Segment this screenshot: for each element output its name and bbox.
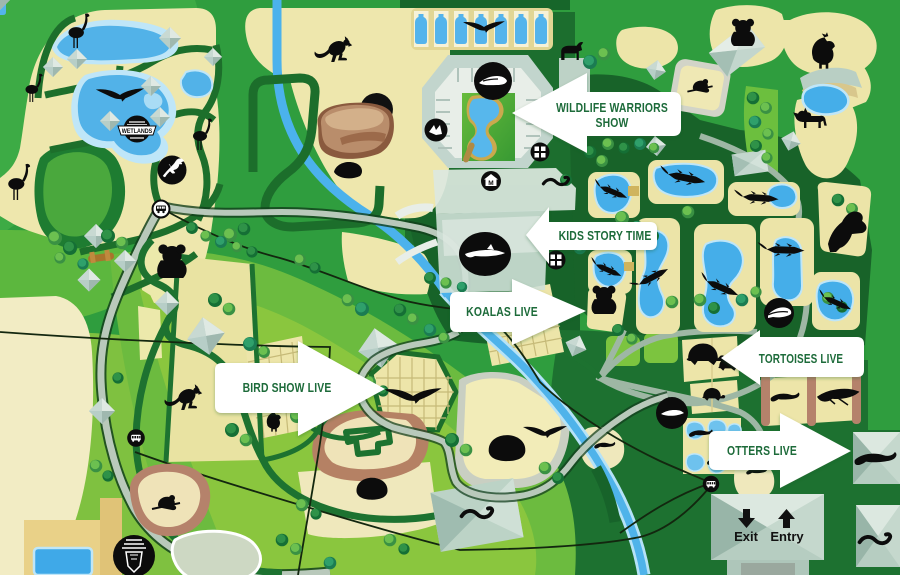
svg-text:WILDLIFE WARRIORS: WILDLIFE WARRIORS [556,101,668,115]
svg-text:SHOW: SHOW [596,116,630,130]
svg-text:Entry: Entry [770,529,804,544]
svg-text:KIDS STORY TIME: KIDS STORY TIME [559,229,652,243]
svg-text:Exit: Exit [734,529,759,544]
svg-text:BIRD SHOW LIVE: BIRD SHOW LIVE [243,381,332,395]
svg-text:M: M [488,180,493,187]
svg-text:KOALAS LIVE: KOALAS LIVE [466,305,538,319]
svg-text:TORTOISES LIVE: TORTOISES LIVE [759,353,844,366]
svg-text:OTTERS LIVE: OTTERS LIVE [727,444,797,458]
svg-text:WETLANDS: WETLANDS [122,129,153,135]
